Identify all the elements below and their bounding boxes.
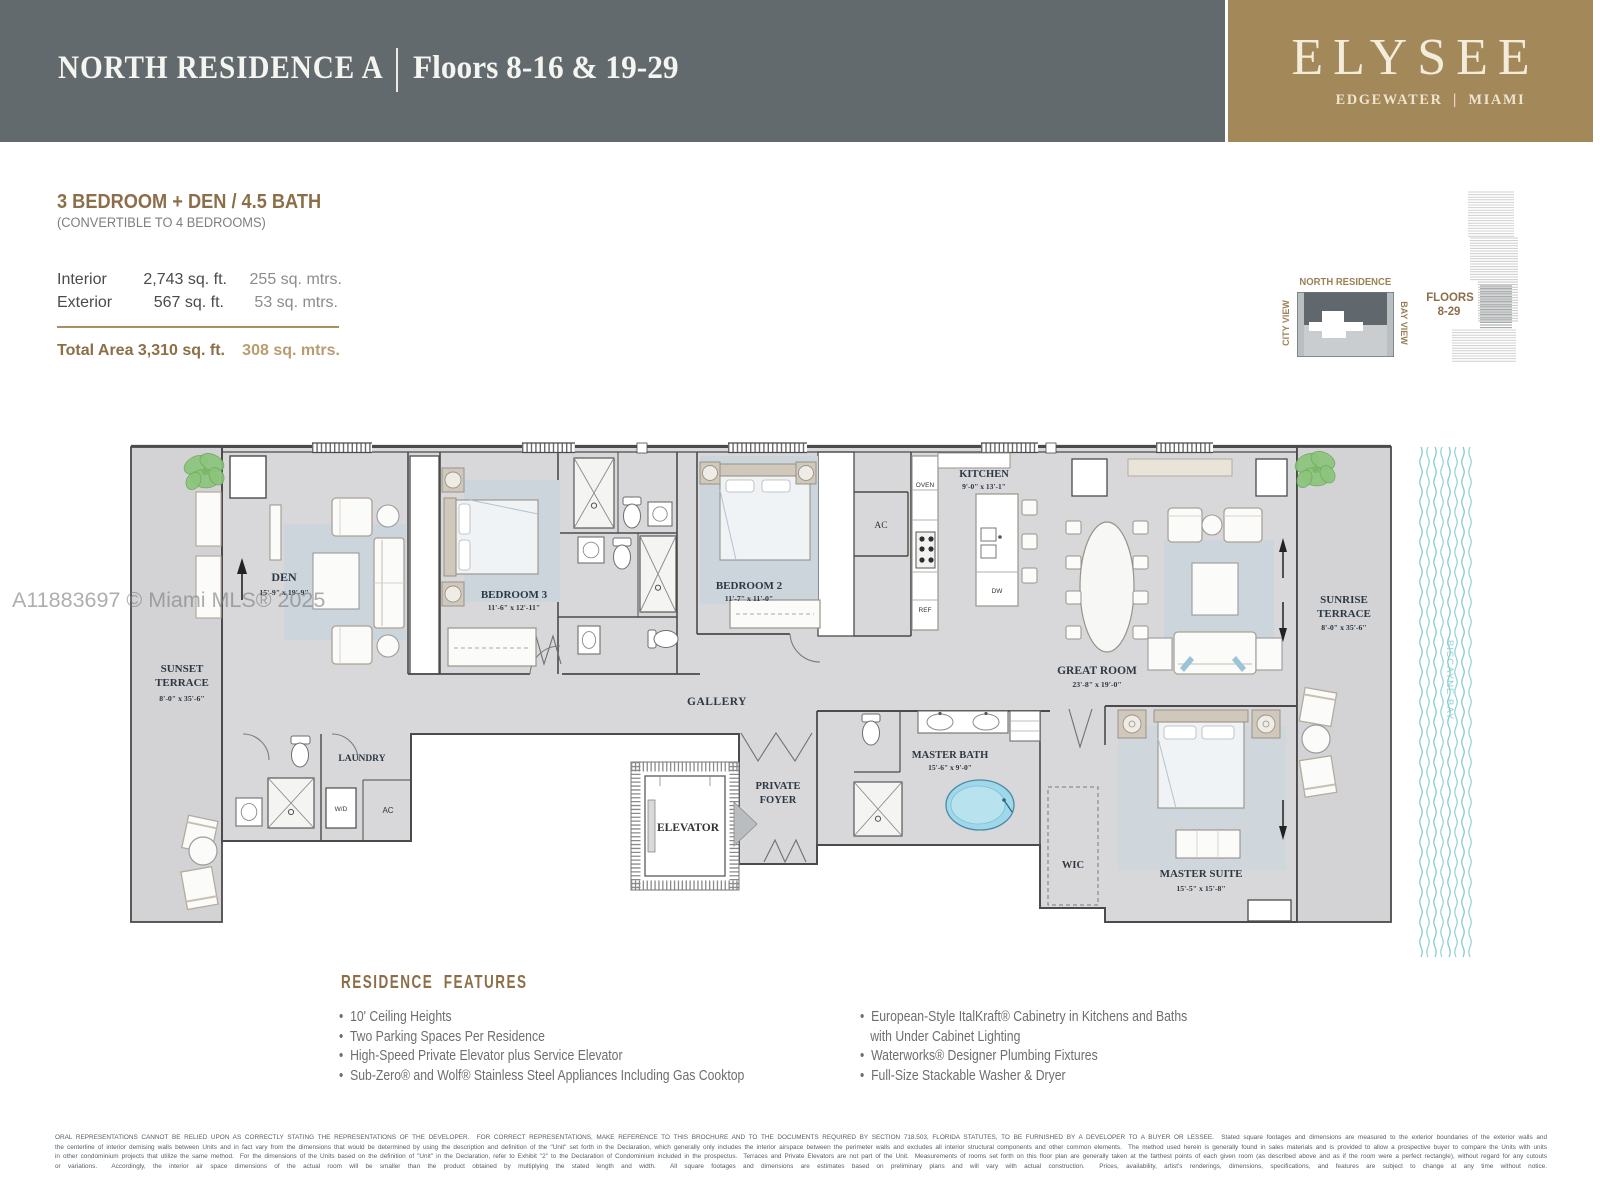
svg-text:W/D: W/D	[335, 806, 348, 813]
svg-text:KITCHEN: KITCHEN	[959, 469, 1009, 480]
svg-text:DW: DW	[992, 588, 1004, 595]
svg-text:BEDROOM 3: BEDROOM 3	[481, 589, 548, 601]
svg-text:8'-0" x 35'-6": 8'-0" x 35'-6"	[1321, 623, 1366, 632]
svg-text:23'-8" x 19'-0": 23'-8" x 19'-0"	[1072, 680, 1121, 689]
svg-text:ELEVATOR: ELEVATOR	[657, 822, 720, 834]
svg-text:MASTER SUITE: MASTER SUITE	[1160, 868, 1243, 880]
svg-text:TERRACE: TERRACE	[1317, 608, 1371, 620]
svg-text:LAUNDRY: LAUNDRY	[338, 754, 385, 764]
svg-text:MASTER BATH: MASTER BATH	[912, 750, 989, 761]
svg-text:AC: AC	[874, 521, 887, 531]
svg-text:AC: AC	[382, 806, 393, 815]
svg-text:WIC: WIC	[1062, 860, 1084, 871]
svg-text:BISCAYNE BAY: BISCAYNE BAY	[1444, 640, 1455, 720]
svg-text:DEN: DEN	[271, 570, 297, 584]
svg-text:11'-7" x 11'-0": 11'-7" x 11'-0"	[725, 594, 774, 603]
svg-text:GREAT ROOM: GREAT ROOM	[1057, 665, 1137, 677]
svg-text:TERRACE: TERRACE	[155, 677, 209, 689]
svg-text:9'-0" x 13'-1": 9'-0" x 13'-1"	[962, 482, 1006, 491]
svg-text:15'-5" x 15'-8": 15'-5" x 15'-8"	[1176, 884, 1225, 893]
svg-text:REF: REF	[919, 607, 932, 614]
svg-text:OVEN: OVEN	[916, 482, 935, 489]
svg-text:BEDROOM 2: BEDROOM 2	[716, 580, 783, 592]
svg-text:SUNSET: SUNSET	[161, 663, 204, 675]
svg-text:8'-0" x 35'-6": 8'-0" x 35'-6"	[159, 694, 204, 703]
svg-text:FOYER: FOYER	[760, 795, 797, 806]
svg-text:15'-6" x 9'-0": 15'-6" x 9'-0"	[928, 763, 972, 772]
svg-text:GALLERY: GALLERY	[687, 696, 747, 708]
svg-text:PRIVATE: PRIVATE	[755, 781, 800, 792]
svg-text:11'-6" x 12'-11": 11'-6" x 12'-11"	[488, 603, 540, 612]
svg-text:SUNRISE: SUNRISE	[1320, 594, 1368, 606]
